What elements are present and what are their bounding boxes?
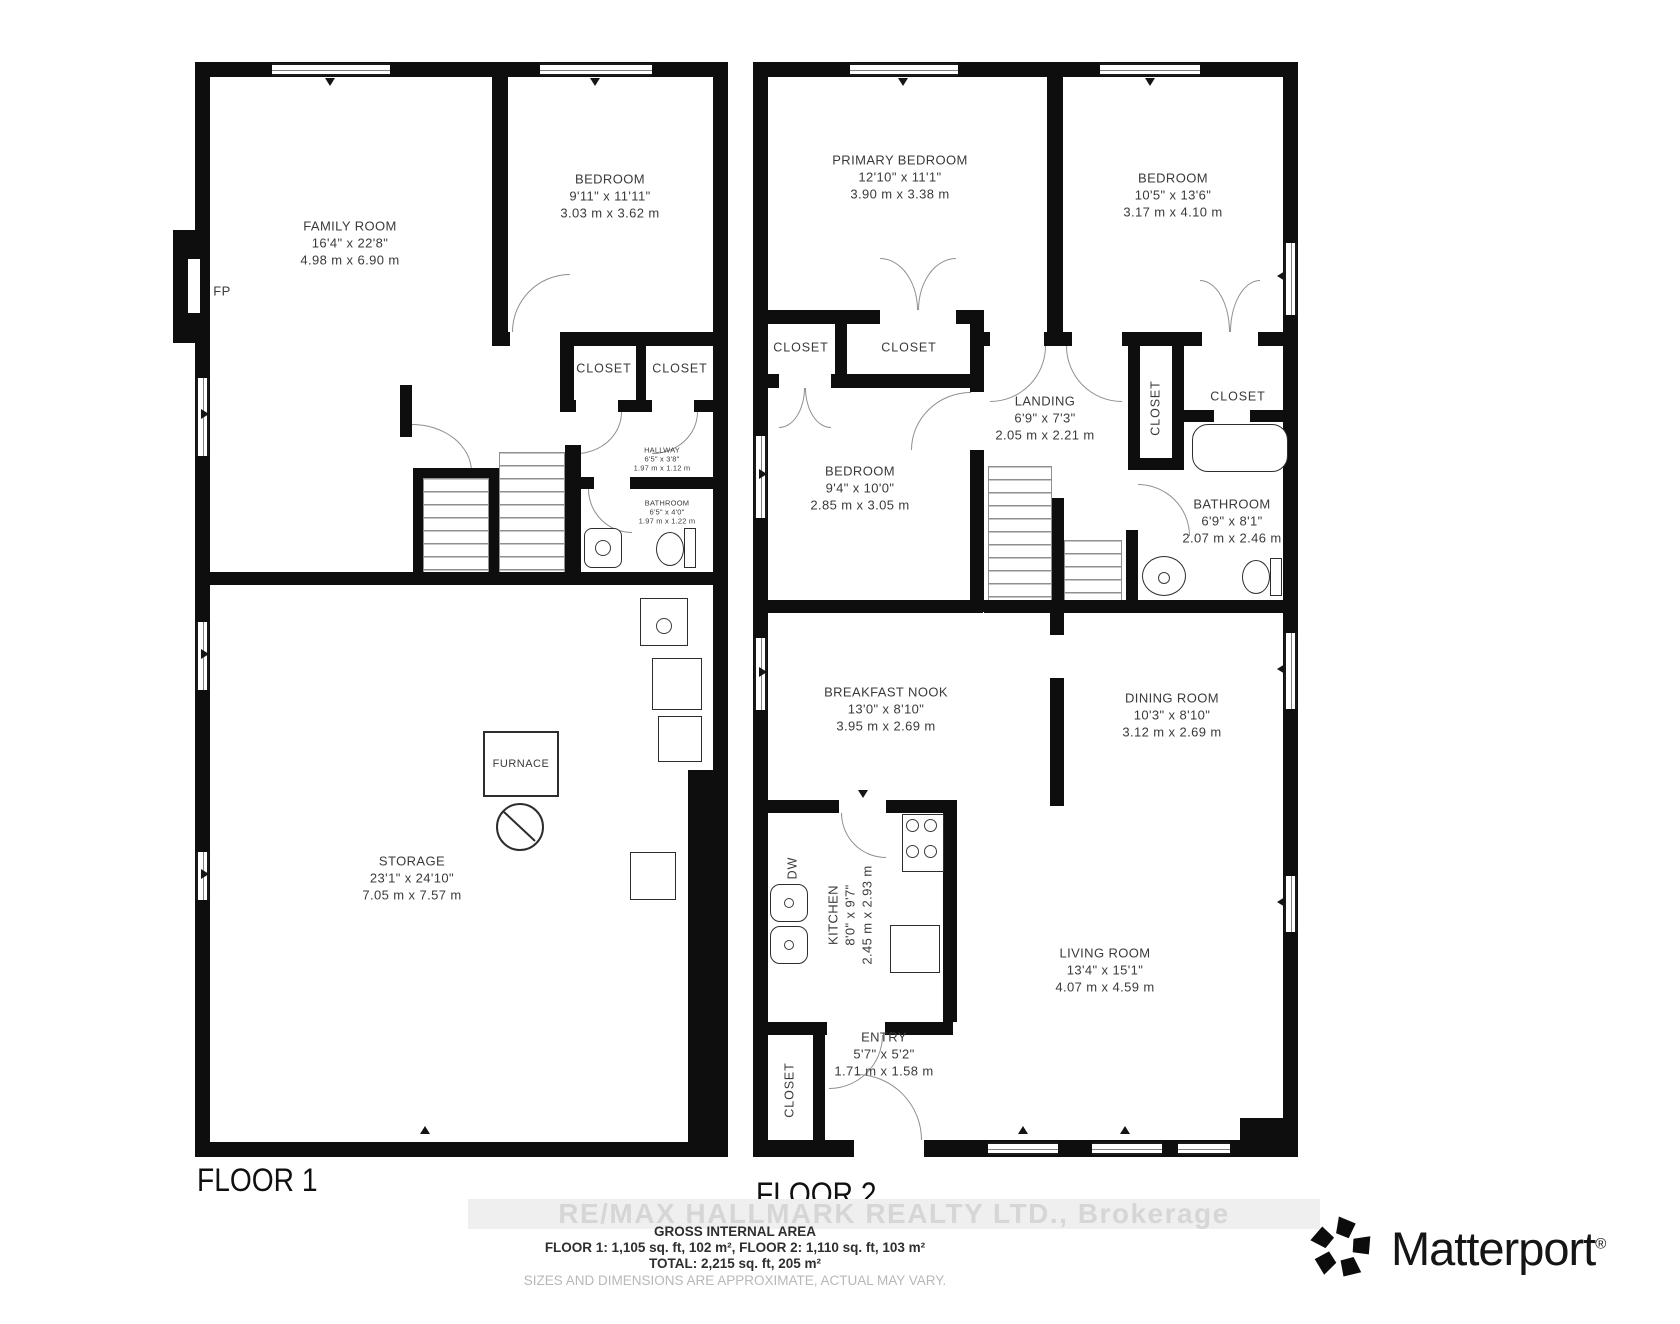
- room-dim-imperial: 10'5" x 13'6": [1123, 187, 1222, 204]
- room-dim-metric: 7.05 m x 7.57 m: [362, 887, 461, 904]
- direction-marker: [1018, 1126, 1028, 1134]
- room-dim-imperial: 8'0" x 9'7": [842, 865, 859, 964]
- area-title: GROSS INTERNAL AREA: [654, 1224, 816, 1239]
- door-opening: [594, 477, 630, 489]
- room-label-entry: ENTRY 5'7" x 5'2" 1.71 m x 1.58 m: [834, 1029, 933, 1080]
- window: [1284, 876, 1297, 932]
- furnace-label: FURNACE: [493, 758, 550, 770]
- toilet-tank: [684, 528, 696, 568]
- door-opening: [1214, 410, 1250, 422]
- stove-burner: [906, 819, 919, 832]
- room-dim-imperial: 12'10" x 11'1": [832, 169, 968, 186]
- door-opening: [1202, 332, 1258, 346]
- direction-marker: [1145, 78, 1155, 86]
- door-opening: [1072, 332, 1122, 346]
- door-arc: [880, 258, 918, 310]
- direction-marker: [201, 869, 209, 879]
- closet-label: CLOSET: [576, 361, 631, 378]
- door-arc: [918, 258, 956, 310]
- direction-marker: [1277, 664, 1285, 674]
- brand-text: Matterport: [1391, 1222, 1595, 1275]
- room-dim-metric: 2.85 m x 3.05 m: [810, 497, 909, 514]
- window: [988, 1142, 1058, 1155]
- room-label-living-room: LIVING ROOM 13'4" x 15'1" 4.07 m x 4.59 …: [1055, 945, 1154, 996]
- room-name: PRIMARY BEDROOM: [832, 152, 968, 169]
- wall: [835, 310, 847, 374]
- disclaimer: SIZES AND DIMENSIONS ARE APPROXIMATE, AC…: [524, 1273, 947, 1288]
- room-dim-imperial: 6'9" x 8'1": [1182, 513, 1281, 530]
- sink-drain: [784, 940, 794, 950]
- direction-marker: [325, 78, 335, 86]
- room-label-family-room: FAMILY ROOM 16'4" x 22'8" 4.98 m x 6.90 …: [300, 218, 399, 269]
- fireplace-notch: [187, 258, 201, 314]
- room-name: ENTRY: [834, 1029, 933, 1046]
- window: [1284, 243, 1297, 315]
- matterport-logo: Matterport®: [1306, 1212, 1605, 1284]
- room-name: DINING ROOM: [1122, 690, 1221, 707]
- appliance: [890, 925, 940, 973]
- wall: [765, 1022, 827, 1035]
- direction-marker: [1277, 897, 1285, 907]
- room-label-primary-bedroom: PRIMARY BEDROOM 12'10" x 11'1" 3.90 m x …: [832, 152, 968, 203]
- door-arc: [1200, 280, 1230, 332]
- appliance: [630, 852, 676, 900]
- door-opening: [880, 310, 956, 324]
- door-arc: [412, 424, 472, 472]
- floorplan-page: FURNACE FAMILY ROOM 16'4" x 22'8" 4.98 m…: [0, 0, 1680, 1324]
- wall: [489, 468, 499, 584]
- room-name: BEDROOM: [810, 463, 909, 480]
- room-dim-imperial: 9'4" x 10'0": [810, 480, 909, 497]
- fireplace-label: FP: [213, 283, 230, 300]
- wall: [984, 600, 1126, 613]
- room-label-bedroom: BEDROOM 9'11" x 11'11" 3.03 m x 3.62 m: [560, 171, 659, 222]
- direction-marker: [759, 667, 767, 677]
- window: [540, 63, 652, 76]
- appliance: [658, 716, 702, 762]
- door-arc: [576, 412, 622, 454]
- window: [1284, 633, 1297, 709]
- room-dim-metric: 4.98 m x 6.90 m: [300, 252, 399, 269]
- room-name: BATHROOM: [1182, 496, 1281, 513]
- direction-marker: [759, 469, 767, 479]
- wall: [1128, 458, 1184, 470]
- door-opening: [854, 1140, 924, 1157]
- room-dim-metric: 2.07 m x 2.46 m: [1182, 530, 1281, 547]
- wall: [1047, 62, 1063, 346]
- wall: [1050, 613, 1064, 635]
- window: [1178, 1142, 1230, 1155]
- closet-label: CLOSET: [652, 361, 707, 378]
- room-dim-metric: 3.17 m x 4.10 m: [1123, 204, 1222, 221]
- room-dim-imperial: 16'4" x 22'8": [300, 235, 399, 252]
- room-label-kitchen: KITCHEN 8'0" x 9'7" 2.45 m x 2.93 m: [825, 865, 876, 964]
- wall: [195, 62, 210, 1157]
- direction-marker: [420, 1126, 430, 1134]
- room-dim-metric: 2.05 m x 2.21 m: [995, 427, 1094, 444]
- stove-burner: [924, 845, 937, 858]
- door-opening: [779, 374, 831, 388]
- room-dim-imperial: 13'0" x 8'10": [824, 701, 948, 718]
- wall: [970, 310, 984, 392]
- room-label-breakfast-nook: BREAKFAST NOOK 13'0" x 8'10" 3.95 m x 2.…: [824, 684, 948, 735]
- room-dim-imperial: 9'11" x 11'11": [560, 188, 659, 205]
- room-dim-imperial: 6'9" x 7'3": [995, 410, 1094, 427]
- room-name: LIVING ROOM: [1055, 945, 1154, 962]
- matterport-wordmark: Matterport®: [1391, 1221, 1605, 1276]
- direction-marker: [1120, 1126, 1130, 1134]
- room-label-bathroom: BATHROOM 6'5" x 4'0" 1.97 m x 1.22 m: [639, 499, 696, 526]
- door-arc: [588, 489, 632, 533]
- room-name: BREAKFAST NOOK: [824, 684, 948, 701]
- room-dim-imperial: 23'1" x 24'10": [362, 870, 461, 887]
- sink-drain: [784, 898, 794, 908]
- furnace: FURNACE: [483, 731, 559, 797]
- wall: [753, 600, 983, 613]
- staircase: [423, 478, 489, 572]
- room-dim-imperial: 6'5" x 3'8": [634, 455, 691, 464]
- room-dim-imperial: 13'4" x 15'1": [1055, 962, 1154, 979]
- room-dim-metric: 4.07 m x 4.59 m: [1055, 979, 1154, 996]
- area-floor-breakdown: FLOOR 1: 1,105 sq. ft, 102 m², FLOOR 2: …: [545, 1240, 925, 1255]
- direction-marker: [201, 409, 209, 419]
- wall: [413, 468, 497, 478]
- room-dim-metric: 2.45 m x 2.93 m: [859, 865, 876, 964]
- direction-marker: [590, 78, 600, 86]
- wall: [195, 572, 728, 585]
- room-name: LANDING: [995, 393, 1094, 410]
- window: [1100, 63, 1200, 76]
- room-dim-metric: 3.12 m x 2.69 m: [1122, 724, 1221, 741]
- closet-label: CLOSET: [881, 340, 936, 357]
- wall: [492, 62, 508, 334]
- door-opening: [652, 400, 694, 412]
- room-name: FAMILY ROOM: [300, 218, 399, 235]
- room-label-landing: LANDING 6'9" x 7'3" 2.05 m x 2.21 m: [995, 393, 1094, 444]
- room-label-dining-room: DINING ROOM 10'3" x 8'10" 3.12 m x 2.69 …: [1122, 690, 1221, 741]
- room-name: STORAGE: [362, 853, 461, 870]
- laundry-tub-drain: [656, 618, 672, 634]
- closet-label: CLOSET: [1148, 380, 1165, 435]
- room-name: BATHROOM: [639, 499, 696, 508]
- room-name: HALLWAY: [634, 446, 691, 455]
- staircase: [499, 452, 565, 572]
- room-dim-imperial: 6'5" x 4'0": [639, 508, 696, 517]
- room-dim-metric: 1.71 m x 1.58 m: [834, 1063, 933, 1080]
- room-label-bedroom-mid: BEDROOM 9'4" x 10'0" 2.85 m x 3.05 m: [810, 463, 909, 514]
- door-arc: [841, 813, 886, 858]
- water-heater-icon: [494, 801, 546, 853]
- brokerage-watermark: RE/MAX HALLMARK REALTY LTD., Brokerage: [468, 1199, 1320, 1229]
- wall: [565, 445, 581, 584]
- window: [272, 63, 390, 76]
- door-arc: [779, 388, 805, 428]
- door-arc: [1230, 280, 1260, 332]
- wall: [560, 332, 574, 410]
- door-opening: [576, 400, 618, 412]
- wall: [1126, 600, 1298, 613]
- wall: [1240, 1118, 1298, 1157]
- wall: [1172, 346, 1184, 470]
- door-opening: [990, 332, 1044, 346]
- closet-label: CLOSET: [1210, 389, 1265, 406]
- dishwasher-label: DW: [785, 857, 802, 880]
- door-arc: [911, 392, 971, 450]
- stove-burner: [924, 819, 937, 832]
- room-label-bedroom-right: BEDROOM 10'5" x 13'6" 3.17 m x 4.10 m: [1123, 170, 1222, 221]
- toilet-bowl: [656, 532, 684, 566]
- direction-marker: [858, 790, 868, 798]
- registered-mark: ®: [1595, 1235, 1605, 1252]
- wall: [753, 62, 1298, 77]
- room-label-bathroom2: BATHROOM 6'9" x 8'1" 2.07 m x 2.46 m: [1182, 496, 1281, 547]
- stove-burner: [906, 845, 919, 858]
- wall: [1050, 678, 1064, 806]
- floor1-title: FLOOR 1: [197, 1162, 317, 1199]
- room-dim-imperial: 5'7" x 5'2": [834, 1046, 933, 1063]
- direction-marker: [201, 649, 209, 659]
- wall: [1052, 498, 1064, 612]
- room-dim-imperial: 10'3" x 8'10": [1122, 707, 1221, 724]
- window: [1092, 1142, 1162, 1155]
- direction-marker: [898, 78, 908, 86]
- window: [850, 63, 958, 76]
- wall: [970, 450, 984, 612]
- wall: [813, 1035, 825, 1140]
- room-name: BEDROOM: [1123, 170, 1222, 187]
- closet-label: CLOSET: [782, 1062, 799, 1117]
- door-arc: [805, 388, 831, 428]
- sink-drain: [1158, 572, 1170, 584]
- room-dim-metric: 1.97 m x 1.12 m: [634, 464, 691, 473]
- door-arc: [512, 274, 570, 332]
- room-label-storage: STORAGE 23'1" x 24'10" 7.05 m x 7.57 m: [362, 853, 461, 904]
- wall: [757, 800, 839, 813]
- closet-label: CLOSET: [773, 340, 828, 357]
- matterport-pinwheel-icon: [1306, 1212, 1376, 1284]
- room-name: KITCHEN: [825, 865, 842, 964]
- bathtub: [1192, 424, 1288, 472]
- staircase: [988, 466, 1052, 600]
- room-dim-metric: 3.90 m x 3.38 m: [832, 186, 968, 203]
- area-total: TOTAL: 2,215 sq. ft, 205 m²: [649, 1256, 821, 1271]
- wall: [688, 770, 728, 1142]
- room-label-hallway: HALLWAY 6'5" x 3'8" 1.97 m x 1.12 m: [634, 446, 691, 473]
- wall: [413, 468, 423, 584]
- appliance: [652, 658, 702, 710]
- room-dim-metric: 1.97 m x 1.22 m: [639, 517, 696, 526]
- wall: [943, 800, 957, 1022]
- room-dim-metric: 3.03 m x 3.62 m: [560, 205, 659, 222]
- wall: [1128, 346, 1140, 470]
- door-arc: [856, 1074, 922, 1140]
- room-dim-metric: 3.95 m x 2.69 m: [824, 718, 948, 735]
- sink-drain: [595, 540, 611, 556]
- direction-marker: [1277, 271, 1285, 281]
- room-name: BEDROOM: [560, 171, 659, 188]
- wall: [400, 385, 412, 437]
- toilet-tank: [1270, 558, 1282, 596]
- wall: [195, 1142, 728, 1157]
- toilet-bowl: [1242, 560, 1270, 594]
